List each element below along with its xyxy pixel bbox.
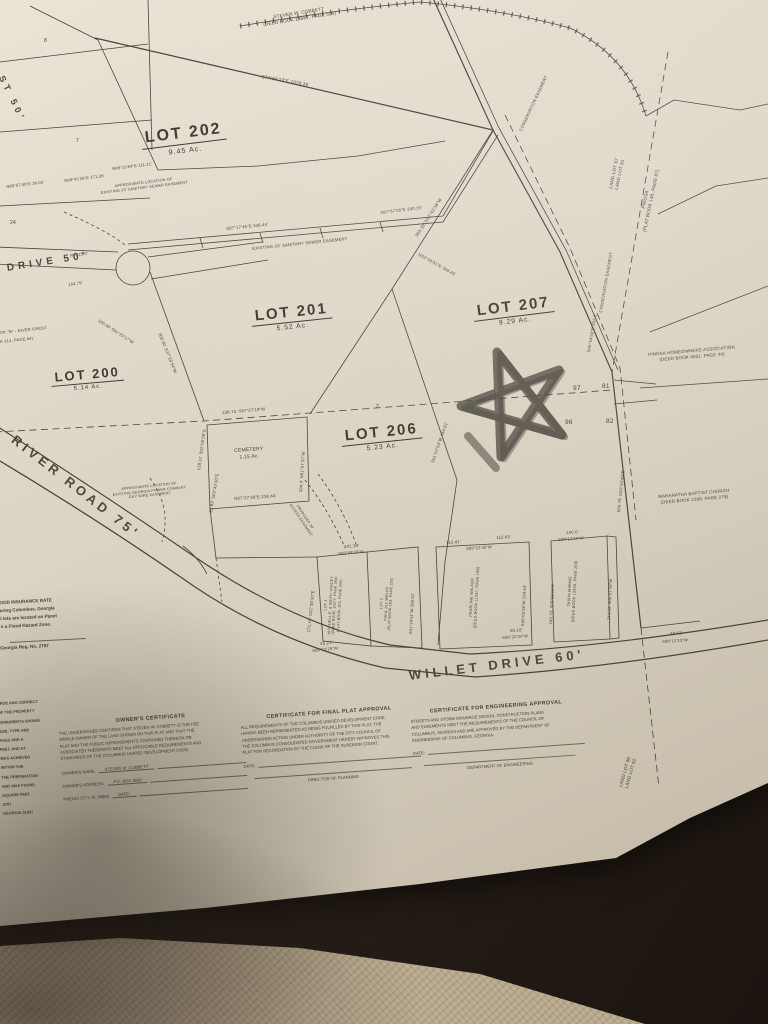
plat-sheet: LOT 202 9.45 Ac. LOT 201 5.52 Ac. LOT 20… bbox=[0, 0, 768, 1024]
clipped-text-fragments: ETRUE AND CORRECTOF THE PROPERTYMONUMENT… bbox=[0, 686, 75, 818]
reg-number: Georgia Reg. No. 2787 bbox=[0, 643, 49, 651]
margin-notes-layer: OOD INSURANCE RATEering Columbus, Georgi… bbox=[0, 0, 768, 1024]
photo-scene: LOT 202 9.45 Ac. LOT 201 5.52 Ac. LOT 20… bbox=[0, 0, 768, 1024]
flood-note: OOD INSURANCE RATEering Columbus, Georgi… bbox=[0, 593, 123, 631]
plat-sheet-wrap: LOT 202 9.45 Ac. LOT 201 5.52 Ac. LOT 20… bbox=[0, 0, 768, 1024]
surveyor-reg-note: Georgia Reg. No. 2787 bbox=[0, 637, 96, 650]
